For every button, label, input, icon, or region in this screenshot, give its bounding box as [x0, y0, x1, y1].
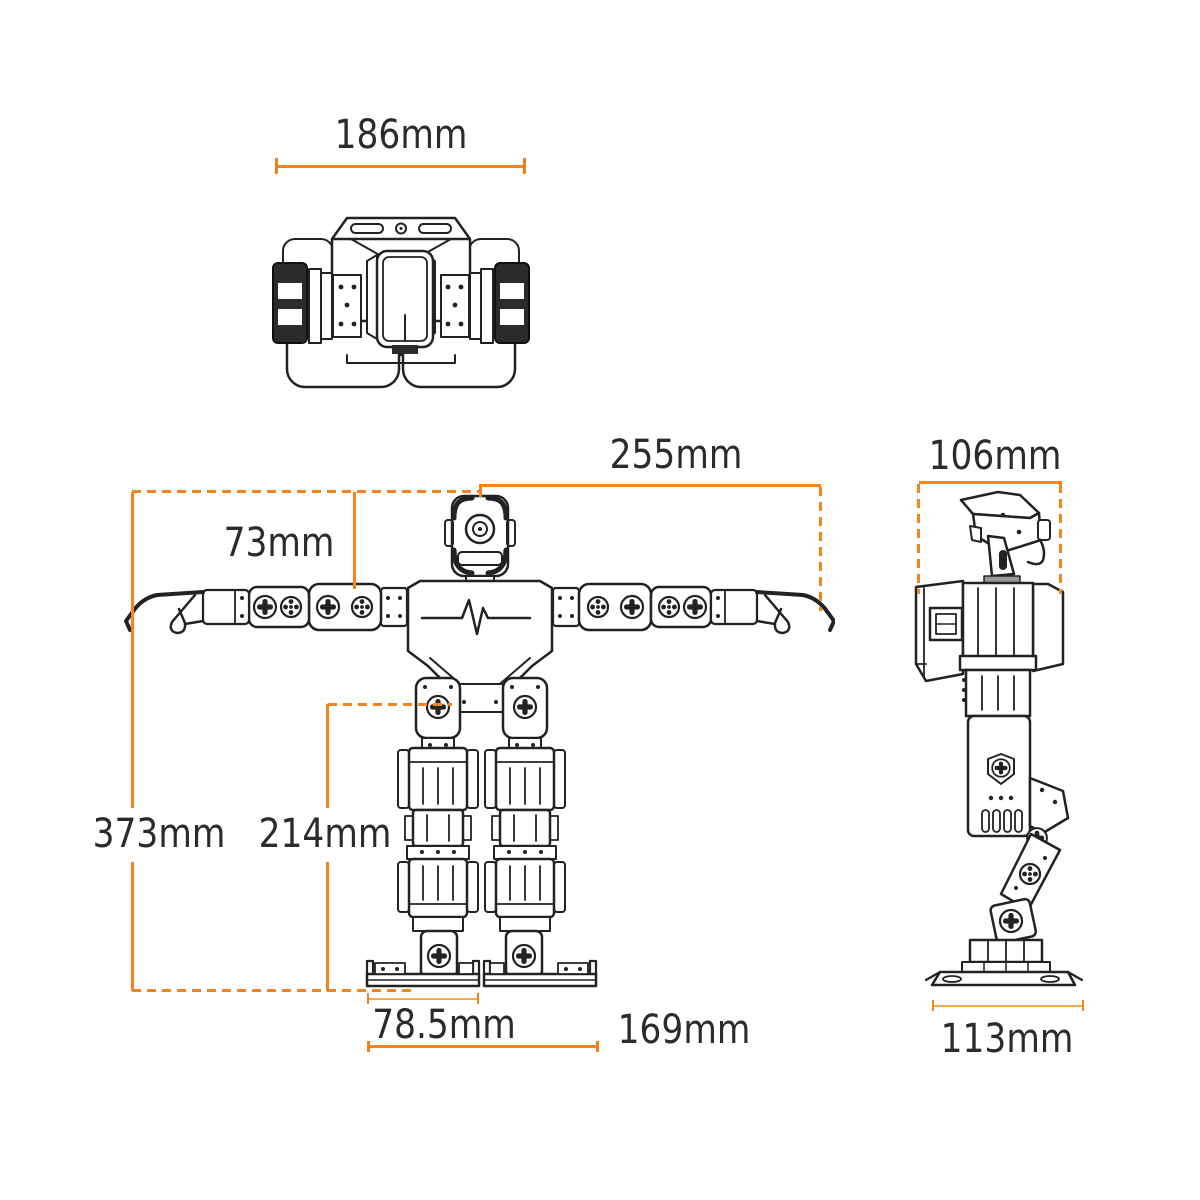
dim-label-body-depth: 106mm [929, 433, 1062, 479]
dim-tick [1082, 1000, 1084, 1011]
dim-line-total-height-lower [131, 862, 134, 991]
side-foot [926, 940, 1082, 985]
dim-line-body-depth [919, 481, 1062, 484]
side-torso [916, 581, 1063, 716]
dim-line-total-height-upper [131, 492, 134, 808]
dim-label-head-to-shoulder: 73mm [224, 520, 335, 566]
dim-label-arm-span: 255mm [610, 432, 743, 478]
dim-tick [523, 158, 526, 174]
gripper-icon [757, 592, 834, 633]
dim-extension-depth-right [1059, 484, 1062, 594]
dim-label-stance-width: 169mm [618, 1007, 751, 1053]
top-view-drawing [265, 205, 537, 401]
dim-line-stance-width [368, 1045, 598, 1048]
dim-line-leg-height-lower [326, 862, 329, 991]
dim-extension-ground [132, 989, 416, 992]
side-thigh [968, 716, 1030, 836]
dim-tick [367, 1041, 370, 1052]
dim-line-top-width [277, 165, 525, 168]
dim-line-head-to-shoulder [353, 492, 356, 589]
dim-label-foot-length: 78.5mm [372, 1002, 516, 1048]
dim-line-foot-length [368, 998, 477, 1000]
dim-tick [596, 1041, 599, 1052]
dim-extension-depth-left [917, 484, 920, 594]
dim-tick [367, 993, 369, 1004]
dim-tick [275, 158, 278, 174]
dim-line-arm-span [480, 484, 821, 487]
dim-label-top-width: 186mm [335, 112, 468, 158]
dim-extension-hip [328, 703, 452, 706]
front-head [445, 496, 515, 588]
robot-dimension-diagram: 186mm 255mm 73mm 373mm 214mm 78.5mm 169m… [0, 0, 1200, 1200]
top-head-block [367, 251, 435, 354]
dim-line-leg-height-upper [326, 704, 329, 808]
dim-label-leg-height: 214mm [259, 811, 392, 857]
dim-label-total-height: 373mm [93, 811, 226, 857]
dim-label-foot-base: 113mm [941, 1016, 1074, 1062]
top-side-servo [273, 263, 361, 343]
dim-line-foot-base [933, 1005, 1083, 1007]
dim-tick [932, 1000, 934, 1011]
side-view-drawing [900, 488, 1100, 1000]
front-right-arm [553, 584, 834, 633]
side-head [961, 492, 1050, 585]
dim-tick [477, 993, 479, 1004]
dim-extension-head-top [132, 490, 480, 493]
dim-extension-arm-tip [819, 487, 822, 611]
